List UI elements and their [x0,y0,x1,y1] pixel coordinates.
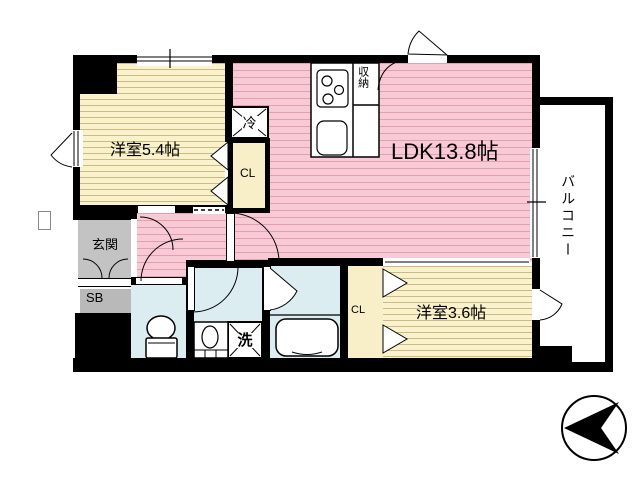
exterior-box [38,211,51,230]
wall-balcony-right [605,97,613,372]
ldk-label: LDK13.8帖 [391,139,499,164]
bedroom-b-label: 洋室3.6帖 [416,305,486,323]
wall-bath-closet [340,262,348,358]
wall-top-left [73,55,137,63]
entrance-hall-opening [131,219,137,277]
wall-left-upper [73,55,80,130]
storage-label: 収納 [356,66,369,88]
compass-circle [562,396,626,460]
wall-top-mid [212,55,408,63]
refrigerator-label: 冷 [231,107,268,138]
front-door-swing [408,31,447,55]
front-door-gap [408,53,447,63]
ldk-door-leaf [226,213,235,262]
floor-plan: LDK13.8帖 洋室5.4帖 洋室3.6帖 玄関 SB CL CL 収納 バル… [0,0,640,480]
bedroom-a-slider-gap [193,207,225,214]
compass-arrow-icon [564,402,619,454]
pillar-top-left [80,63,117,94]
bathroom-floor [270,266,340,358]
entrance-door-strip [78,278,131,287]
toilet-door-gap [136,278,182,284]
bedroom-a-door-gap [138,206,175,213]
entrance-label: 玄関 [92,238,118,253]
wall-entrance-top [73,213,137,220]
bedroom-a-label: 洋室5.4帖 [110,142,180,160]
washing-machine-label: 洗 [228,322,262,358]
wall-balcony-top [532,97,613,105]
wall-ldk-right-mid [532,258,540,289]
closet-b-label: CL [351,304,365,317]
toilet-room-floor [131,283,186,358]
closet-a-label: CL [240,167,255,181]
wall-top-right [447,55,540,63]
ldk-bedroom-b-slider [383,258,530,266]
bathroom-door-leaf [263,266,271,311]
window-ldk-balcony [530,148,542,258]
wall-left-mid [73,167,80,217]
wall-closet-b-top [345,258,383,266]
wall-bottom [73,358,540,372]
balcony-label: バルコニー [560,174,576,259]
balcony-door-gap [532,289,540,320]
washroom-door-leaf [187,266,195,311]
pillar-bottom-left [75,313,131,358]
wall-balcony-bottom [540,362,613,372]
wall-bath-top [268,258,345,266]
window-left [70,130,83,167]
shoe-box-label: SB [86,291,103,306]
balcony-pillar [537,346,572,362]
window-left-swing [51,133,72,167]
window-bedroom-a [137,52,212,66]
